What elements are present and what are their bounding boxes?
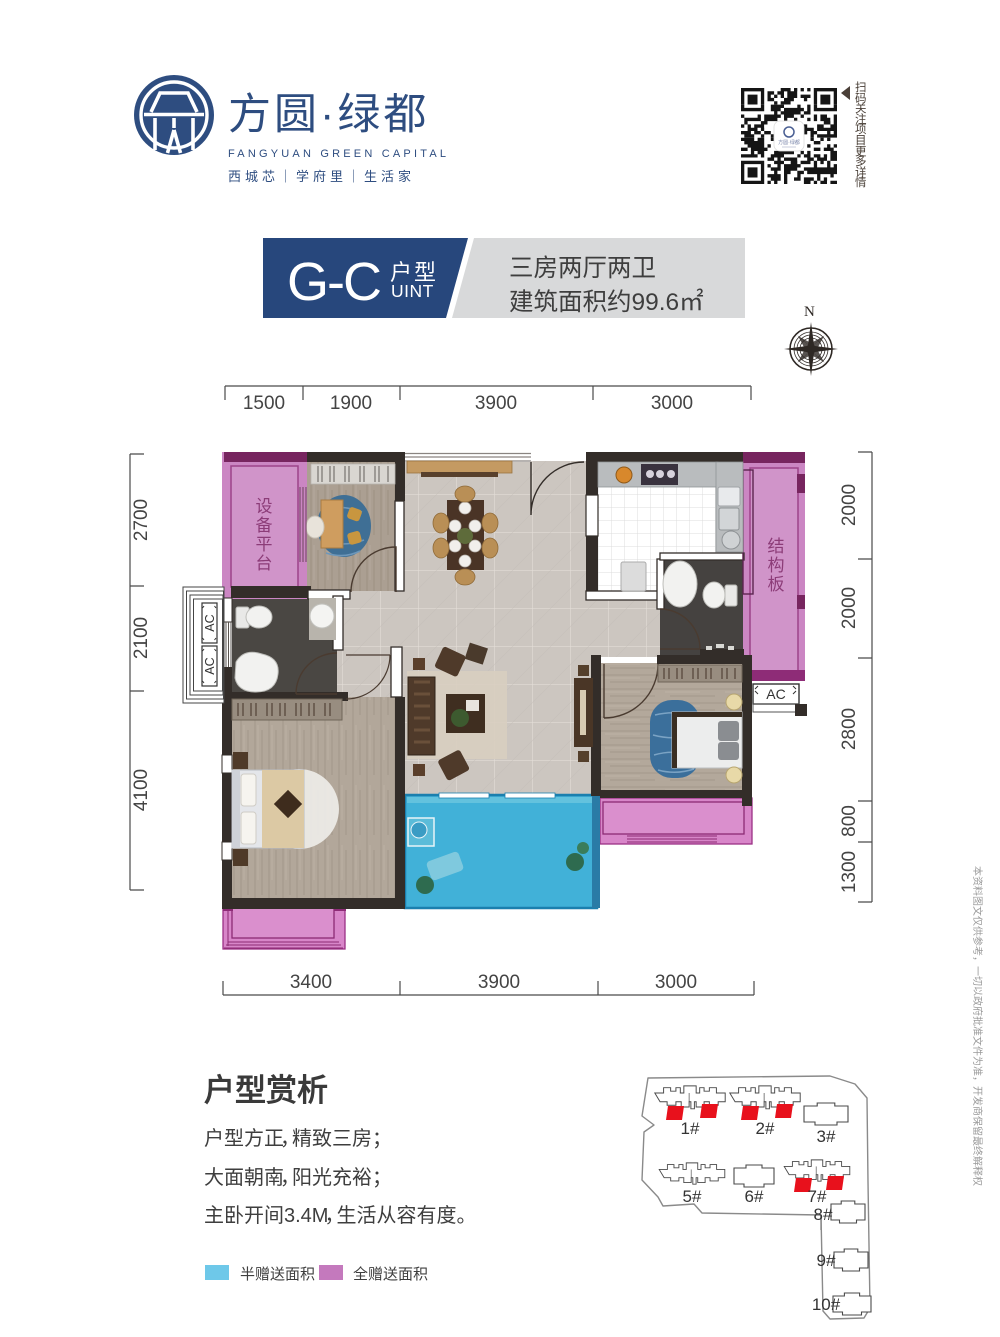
svg-text:板: 板 [768, 575, 785, 594]
svg-text:9#: 9# [817, 1251, 836, 1270]
svg-text:7#: 7# [808, 1187, 827, 1206]
svg-text:3000: 3000 [651, 393, 693, 414]
svg-text:2800: 2800 [839, 708, 860, 750]
svg-text:UINT: UINT [391, 281, 434, 301]
svg-text:2000: 2000 [839, 484, 860, 526]
svg-text:3900: 3900 [475, 393, 517, 414]
svg-text:2100: 2100 [131, 617, 152, 659]
svg-text:AC: AC [203, 657, 217, 674]
svg-text:10#: 10# [812, 1295, 841, 1314]
svg-text:6#: 6# [745, 1187, 764, 1206]
svg-text:3000: 3000 [655, 972, 697, 993]
svg-text:1500: 1500 [243, 393, 285, 414]
svg-text:3#: 3# [817, 1127, 836, 1146]
svg-text:2700: 2700 [131, 499, 152, 541]
svg-text:建筑面积约99.6㎡: 建筑面积约99.6㎡ [509, 288, 704, 316]
svg-text:G-C: G-C [287, 252, 380, 312]
svg-text:平: 平 [256, 535, 273, 554]
svg-text:三房两厅两卫: 三房两厅两卫 [509, 254, 656, 282]
svg-text:1900: 1900 [330, 393, 372, 414]
svg-text:设: 设 [256, 497, 273, 516]
svg-text:3400: 3400 [290, 972, 332, 993]
svg-text:备: 备 [256, 516, 273, 535]
svg-text:台: 台 [256, 554, 273, 573]
svg-text:2#: 2# [756, 1119, 775, 1138]
svg-text:N: N [804, 304, 815, 320]
svg-text:800: 800 [839, 805, 860, 837]
svg-text:4100: 4100 [131, 769, 152, 811]
svg-text:构: 构 [768, 556, 785, 575]
svg-text:AC: AC [766, 686, 785, 702]
svg-text:1300: 1300 [839, 851, 860, 893]
svg-text:2000: 2000 [839, 587, 860, 629]
svg-text:AC: AC [203, 614, 217, 631]
svg-text:5#: 5# [683, 1187, 702, 1206]
svg-text:结: 结 [768, 537, 785, 556]
svg-text:3900: 3900 [478, 972, 520, 993]
svg-text:8#: 8# [814, 1205, 833, 1224]
svg-text:1#: 1# [681, 1119, 700, 1138]
